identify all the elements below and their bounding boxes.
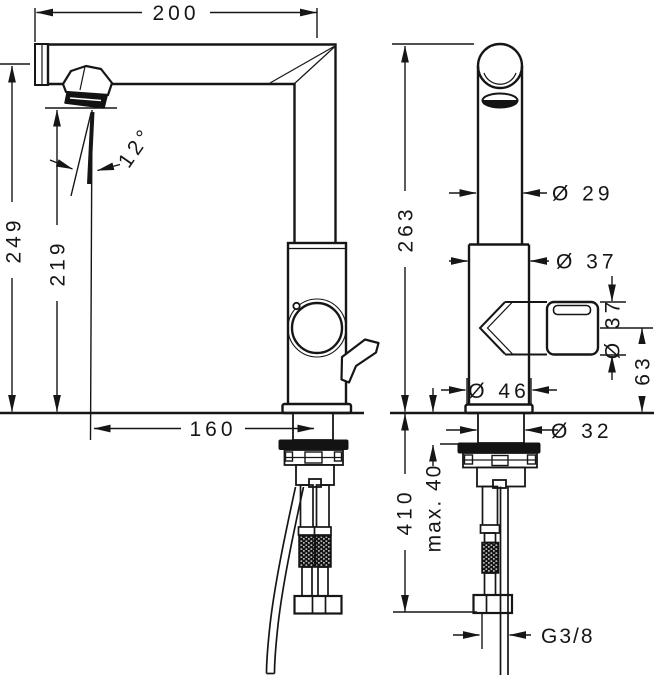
pullout-hose-side [267,487,304,674]
braided-hose-section [299,536,315,567]
dim-outlet-offset-label: 160 [189,418,236,441]
under-counter-side [267,413,349,674]
miter-line [294,46,336,85]
dim-stream-angle: 12° [114,123,158,172]
select-dial [292,303,342,353]
threaded-shank-side [293,413,333,440]
dim-base-diameter-label: Ø 46 [468,380,530,403]
mounting-nut-front [458,443,540,453]
dim-height-to-outlet: 219 [46,225,70,301]
angle-leader-left [50,160,73,169]
dim-handle-knob-diameter: Ø 37 [602,298,625,360]
dim-handle-knob-diameter-label: Ø 37 [602,298,625,360]
dim-height-overall: 263 [394,191,418,267]
dim-stream-angle-label: 12° [114,123,158,172]
hex-connector-front [474,595,513,613]
braided-hose-section [316,536,332,567]
base-flange-front [466,405,533,414]
dim-spout-reach: 200 [142,2,210,25]
dim-hose-drop: 410 [393,474,417,550]
dim-body-diameter-label: Ø 37 [556,251,618,274]
dim-handle-height-label: 63 [632,354,654,385]
dim-height-to-top: 249 [2,202,26,278]
supply-hose-front [474,487,513,614]
dial-marker [293,303,299,309]
pullout-hose-front [501,487,509,675]
spout-bend-front [478,44,522,88]
dim-height-to-top-label: 249 [3,216,26,263]
dim-spout-pipe-diameter-label: Ø 29 [552,183,614,206]
dim-spout-reach-label: 200 [152,2,199,25]
dim-height-overall-label: 263 [395,205,418,252]
base-flange-side [283,404,352,413]
technical-drawing-page: 200 249 219 12° 160 263 Ø 29 Ø 37 Ø 37 6… [0,0,654,675]
dim-outlet-offset: 160 [181,418,245,441]
hex-connector-side [295,596,342,614]
spray-head [63,66,112,108]
dim-max-mounting-thickness: max. 40 [423,464,446,553]
threaded-shank-front [478,413,524,443]
mounting-nut-side [279,440,348,450]
spout-front [478,44,522,245]
dim-supply-thread-label: G3/8 [541,625,595,648]
dim-max-mounting-thickness-label: max. 40 [423,464,446,553]
faucet-body-side [283,243,379,413]
faucet-technical-drawing: 200 249 219 12° 160 263 Ø 29 Ø 37 Ø 37 6… [0,0,654,675]
angle-leader-right [98,165,121,171]
dim-height-to-outlet-label: 219 [47,239,70,286]
braided-hose-section [482,543,499,574]
dim-shank-diameter-label: Ø 32 [551,420,613,443]
supply-hoses-side [295,485,342,614]
dim-hose-drop-label: 410 [394,488,417,535]
dim-handle-height: 63 [631,344,654,396]
